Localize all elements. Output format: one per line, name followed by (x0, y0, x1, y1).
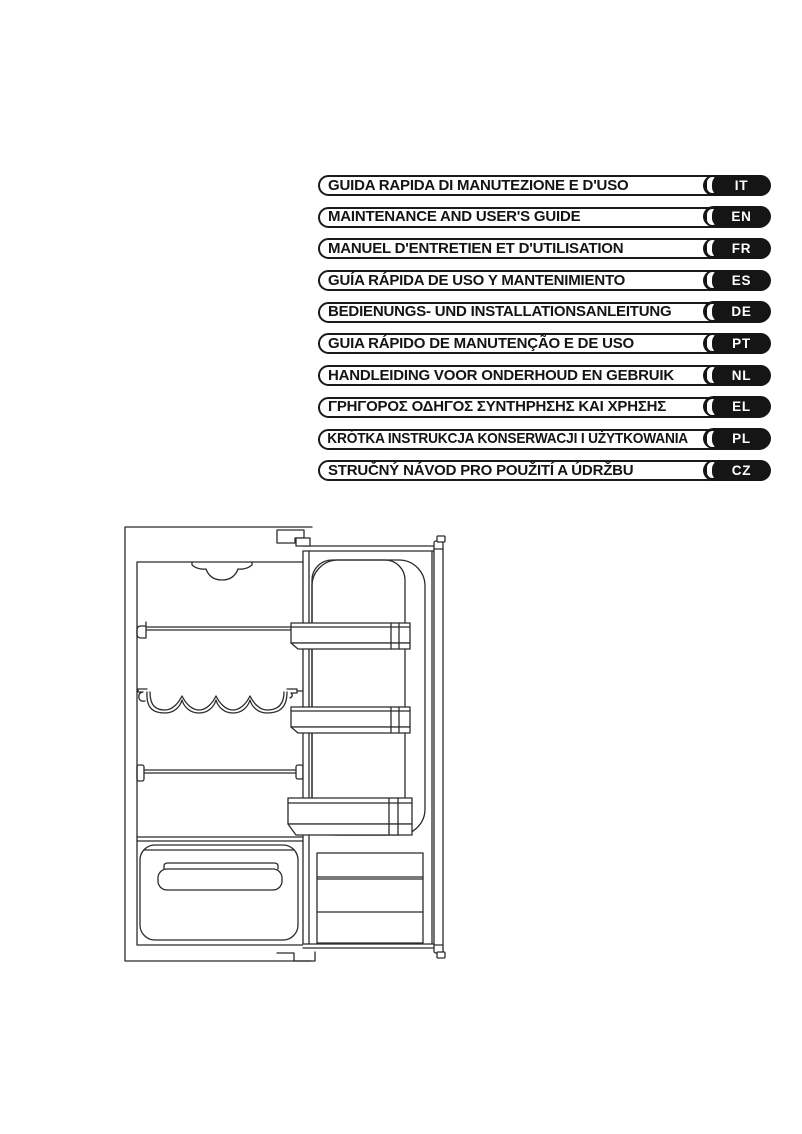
language-code: EN (721, 206, 751, 227)
bin-body (291, 623, 410, 643)
language-code: PL (722, 428, 751, 449)
language-code-badge: NL (703, 365, 771, 386)
language-entry-pt: GUIA RÁPIDO DE MANUTENÇÃO E DE USO PT (318, 333, 770, 354)
bin-flange (291, 727, 410, 733)
language-code: ES (722, 270, 752, 291)
language-code-badge: CZ (703, 460, 771, 481)
language-code: EL (722, 396, 751, 417)
language-entry-el: ΓΡΗΓΟΡΟΣ ΟΔΗΓΟΣ ΣΥΝΤΗΡΗΣΗΣ ΚΑΙ ΧΡΗΣΗΣ EL (318, 397, 770, 418)
language-code-badge: ES (703, 270, 771, 291)
language-entry-cz: STRUČNÝ NÁVOD PRO POUŽITÍ A ÚDRŽBU CZ (318, 460, 770, 481)
shelf-surface (146, 627, 303, 630)
upper-shelf (137, 622, 303, 638)
language-code: PT (722, 333, 751, 354)
shelf-bracket (137, 622, 146, 638)
bottom-hinge-bracket (277, 952, 315, 961)
language-code: NL (722, 365, 752, 386)
language-code-badge: EN (703, 206, 771, 227)
crisper-handle (158, 869, 282, 890)
language-entry-fr: MANUEL D'ENTRETIEN ET D'UTILISATION FR (318, 238, 770, 259)
door-lower-panel (317, 853, 423, 943)
language-index: GUIDA RAPIDA DI MANUTEZIONE E D'USO IT M… (318, 175, 770, 492)
bin-body (288, 798, 412, 824)
manual-title: GUIA RÁPIDO DE MANUTENÇÃO E DE USO (320, 336, 634, 352)
manual-title: STRUČNÝ NÁVOD PRO POUŽITÍ A ÚDRŽBU (320, 463, 633, 479)
manual-title: ΓΡΗΓΟΡΟΣ ΟΔΗΓΟΣ ΣΥΝΤΗΡΗΣΗΣ ΚΑΙ ΧΡΗΣΗΣ (320, 399, 666, 415)
shelf-end-right (296, 765, 303, 779)
door-bin-1 (291, 623, 410, 649)
glass-shelf (137, 837, 303, 841)
language-entry-es: GUÍA RÁPIDA DE USO Y MANTENIMIENTO ES (318, 270, 770, 291)
fridge-door (303, 536, 445, 958)
crisper-section (137, 837, 303, 940)
language-entry-de: BEDIENUNGS- UND INSTALLATIONSANLEITUNG D… (318, 302, 770, 323)
language-code-badge: EL (703, 396, 771, 417)
language-code: IT (725, 175, 749, 196)
language-code-badge: FR (703, 238, 771, 259)
bin-flange (291, 643, 410, 649)
manual-title: MAINTENANCE AND USER'S GUIDE (320, 209, 580, 225)
language-entry-pl: KRÓTKA INSTRUKCJA KONSERWACJI I UŻYTKOWA… (318, 429, 770, 450)
language-entry-en: MAINTENANCE AND USER'S GUIDE EN (318, 207, 770, 228)
language-code: DE (721, 301, 751, 322)
language-code-badge: PL (703, 428, 771, 449)
manual-title: KRÓTKA INSTRUKCJA KONSERWACJI I UŻYTKOWA… (320, 431, 688, 447)
wine-rack (138, 689, 303, 713)
manual-title: BEDIENUNGS- UND INSTALLATIONSANLEITUNG (320, 304, 672, 320)
bin-body (291, 707, 410, 727)
lower-shelf (137, 765, 303, 781)
wine-rack-bracket-right (287, 689, 303, 698)
language-entry-nl: HANDLEIDING VOOR ONDERHOUD EN GEBRUIK NL (318, 365, 770, 386)
crisper-drawer (140, 845, 298, 940)
refrigerator-figure (115, 515, 460, 975)
manual-title: GUIDA RAPIDA DI MANUTEZIONE E D'USO (320, 178, 628, 194)
shelf-surface (144, 770, 296, 773)
top-hinge-pin (296, 538, 310, 546)
door-bin-3 (288, 798, 412, 835)
shelf-end-left (137, 765, 144, 781)
manual-cover-page: GUIDA RAPIDA DI MANUTEZIONE E D'USO IT M… (0, 0, 802, 1134)
bin-flange (288, 824, 412, 835)
language-code-badge: IT (703, 175, 771, 196)
language-code-badge: PT (703, 333, 771, 354)
language-code: CZ (722, 460, 752, 481)
interior-light-housing (192, 562, 252, 580)
manual-title: MANUEL D'ENTRETIEN ET D'UTILISATION (320, 241, 623, 257)
language-code-badge: DE (703, 301, 771, 322)
language-code: FR (722, 238, 752, 259)
language-entry-it: GUIDA RAPIDA DI MANUTEZIONE E D'USO IT (318, 175, 770, 196)
door-bin-2 (291, 707, 410, 733)
door-front-face (434, 541, 443, 953)
manual-title: GUÍA RÁPIDA DE USO Y MANTENIMIENTO (320, 273, 625, 289)
wine-rack-bracket-left (138, 689, 147, 701)
door-pin-bottom (437, 952, 445, 958)
door-pin-top (437, 536, 445, 542)
manual-title: HANDLEIDING VOOR ONDERHOUD EN GEBRUIK (320, 368, 674, 384)
